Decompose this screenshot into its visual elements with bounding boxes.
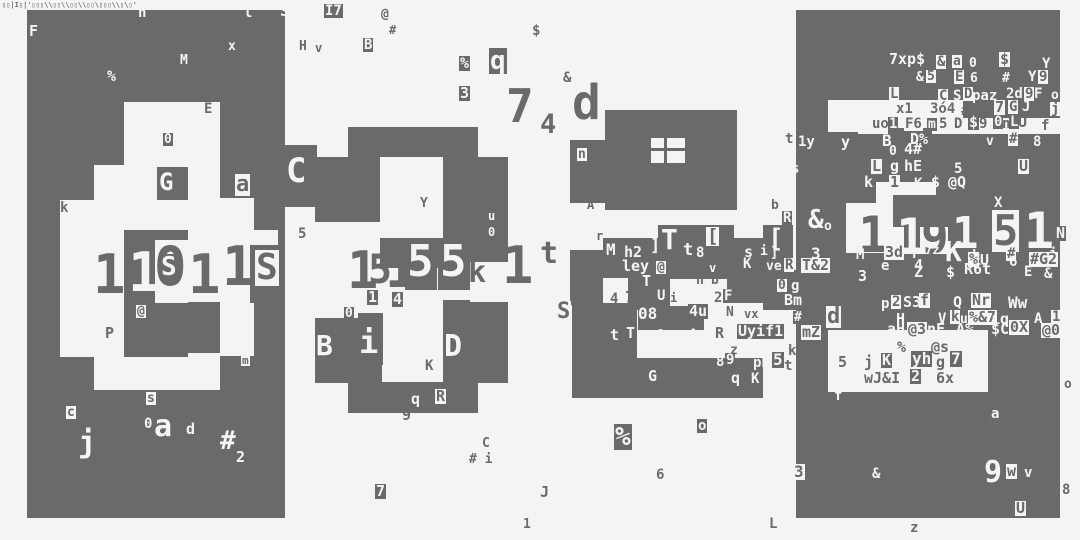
noise-glyph: R — [714, 326, 725, 341]
noise-glyph: R — [782, 211, 792, 225]
noise-glyph: N — [726, 306, 734, 319]
noise-glyph: uo — [872, 117, 889, 131]
noise-glyph: b — [711, 274, 719, 287]
noise-glyph: k — [864, 175, 873, 190]
noise-block — [651, 138, 664, 148]
noise-glyph: 7xp$ — [888, 52, 926, 67]
noise-glyph: & — [563, 71, 571, 85]
noise-glyph: n — [577, 148, 587, 161]
noise-glyph: 6 — [761, 291, 769, 304]
noise-glyph: 8 — [1033, 135, 1041, 149]
noise-glyph: @3 — [907, 322, 927, 337]
noise-glyph: 7 — [506, 83, 534, 129]
noise-glyph: v — [315, 42, 322, 54]
noise-block — [94, 353, 220, 390]
noise-glyph: L — [769, 517, 777, 531]
noise-glyph: M — [856, 248, 864, 262]
noise-glyph: P — [105, 326, 114, 341]
noise-glyph: N — [1055, 226, 1066, 241]
noise-glyph: 8 — [689, 345, 697, 359]
noise-glyph: 1 — [502, 240, 533, 292]
noise-glyph: 0 — [344, 307, 354, 320]
noise-glyph: # — [220, 428, 236, 454]
noise-glyph: ] — [650, 238, 660, 255]
noise-glyph: 1y — [798, 135, 815, 149]
noise-glyph: 9 — [979, 117, 987, 131]
noise-glyph: c — [66, 406, 76, 419]
noise-glyph: 5 — [939, 117, 947, 131]
noise-glyph: p — [881, 297, 889, 311]
noise-block — [651, 151, 664, 163]
noise-glyph: q — [411, 392, 420, 407]
noise-glyph: S — [255, 250, 279, 286]
noise-glyph: R6t — [964, 262, 991, 277]
noise-glyph: 3 — [793, 464, 805, 480]
noise-glyph: 7 — [994, 100, 1005, 115]
noise-glyph: $ — [931, 175, 940, 190]
noise-glyph: 8 — [716, 355, 724, 369]
noise-glyph: D — [444, 332, 462, 362]
noise-glyph: 0 — [969, 57, 977, 70]
noise-glyph: yh — [911, 351, 932, 367]
noise-glyph: # i — [469, 453, 492, 466]
noise-glyph: Ww — [1008, 295, 1027, 311]
noise-glyph: d — [572, 79, 601, 127]
noise-glyph: 3 — [858, 269, 867, 284]
noise-glyph: i — [359, 326, 378, 358]
noise-glyph: o — [824, 220, 832, 233]
noise-glyph: # — [1008, 132, 1018, 146]
noise-glyph: R — [784, 258, 794, 272]
noise-glyph: 1 — [367, 290, 378, 305]
noise-glyph: t — [784, 359, 792, 373]
noise-glyph: n — [696, 274, 704, 287]
noise-glyph: r — [596, 230, 603, 242]
noise-glyph: aH — [887, 322, 905, 337]
noise-glyph: @ — [656, 261, 666, 274]
noise-glyph: S — [280, 4, 289, 19]
noise-glyph: j — [864, 355, 873, 370]
noise-block — [315, 157, 380, 222]
noise-glyph: s — [791, 162, 799, 176]
noise-glyph: $ — [968, 115, 979, 130]
noise-glyph: q — [489, 48, 507, 74]
noise-glyph: $ — [532, 24, 540, 38]
noise-glyph: 8 — [696, 246, 704, 260]
noise-glyph: x1 — [896, 102, 913, 116]
noise-glyph: 5 — [838, 355, 847, 370]
noise-glyph: 1 — [93, 248, 126, 302]
noise-glyph: s — [146, 392, 156, 405]
noise-glyph: Uyif1 — [737, 324, 784, 339]
noise-glyph: Y — [1028, 70, 1036, 84]
noise-glyph: i — [670, 292, 677, 304]
noise-glyph: E — [1024, 265, 1032, 279]
barcode-string: ▯▯|I▯|'▯▯▯\\▯▯\\▯▯\\▯▯\▯▯▯\\▯\▯' — [2, 1, 137, 9]
noise-glyph: hE — [904, 159, 922, 174]
noise-glyph: u — [487, 210, 496, 222]
noise-glyph: o — [697, 419, 707, 433]
noise-glyph: 6 — [656, 468, 664, 482]
noise-glyph: S — [556, 301, 571, 323]
noise-glyph: $ — [999, 52, 1010, 67]
noise-glyph: 0 — [163, 133, 173, 146]
noise-glyph: 5 — [772, 352, 784, 368]
noise-glyph: 0 — [487, 226, 496, 238]
noise-glyph: % — [614, 424, 632, 450]
noise-glyph: 9 — [984, 458, 1002, 488]
noise-glyph: nF — [927, 322, 945, 337]
noise-glyph: 4# — [904, 142, 922, 157]
noise-glyph: U — [1018, 115, 1027, 130]
noise-glyph: 3 — [459, 86, 470, 101]
noise-glyph: Q — [953, 295, 962, 310]
noise-glyph: x — [228, 40, 236, 53]
noise-glyph: a — [154, 412, 172, 442]
noise-glyph: 6x — [936, 371, 954, 386]
noise-glyph: 0 — [656, 328, 665, 343]
noise-glyph: t — [610, 328, 619, 343]
noise-glyph: 1 — [523, 518, 531, 531]
noise-glyph: @0 — [1041, 323, 1061, 338]
noise-glyph: $C — [991, 322, 1009, 337]
noise-glyph: 7 — [375, 484, 386, 499]
noise-glyph: 9 — [1038, 70, 1048, 84]
noise-glyph: q — [731, 371, 740, 386]
noise-glyph: y — [841, 135, 850, 150]
noise-glyph: f — [834, 389, 842, 403]
noise-glyph: F6 — [904, 117, 923, 131]
noise-glyph: k — [468, 258, 486, 288]
noise-glyph: j — [78, 428, 96, 458]
noise-glyph: mZ — [801, 325, 821, 340]
noise-glyph: 4 — [610, 292, 618, 306]
noise-glyph: D — [954, 117, 962, 131]
noise-glyph: b — [771, 199, 779, 212]
noise-glyph: @ — [381, 8, 389, 21]
noise-glyph: a — [952, 55, 962, 68]
noise-glyph: # — [389, 24, 396, 36]
noise-glyph: G — [647, 369, 658, 384]
noise-glyph: T — [625, 326, 636, 341]
noise-glyph: M — [606, 242, 616, 258]
noise-glyph: H — [299, 40, 307, 53]
noise-glyph: & — [936, 55, 946, 69]
noise-glyph: 5 — [406, 240, 435, 284]
noise-glyph: % — [107, 69, 116, 84]
noise-glyph: # — [1002, 72, 1010, 85]
noise-glyph: K — [945, 238, 962, 266]
noise-glyph: 08 — [638, 306, 657, 322]
noise-glyph: K — [881, 353, 892, 368]
noise-glyph: E — [954, 70, 964, 84]
noise-glyph: K — [425, 359, 433, 373]
noise-glyph: t — [784, 132, 794, 146]
noise-glyph: [ — [768, 226, 784, 252]
noise-glyph: 9 — [402, 408, 411, 423]
noise-glyph: 4u — [688, 304, 708, 319]
noise-glyph: M — [180, 54, 188, 67]
noise-glyph: L — [889, 87, 899, 101]
noise-glyph: J — [1022, 100, 1030, 114]
noise-glyph: 9 — [725, 353, 735, 367]
noise-glyph: 8 — [737, 291, 745, 304]
noise-glyph: e — [881, 259, 889, 273]
noise-glyph: E — [204, 102, 212, 116]
noise-glyph: 7z — [925, 244, 939, 256]
noise-glyph: a — [235, 174, 250, 196]
noise-glyph: f — [919, 293, 930, 308]
noise-glyph: pP — [753, 356, 770, 370]
noise-glyph: t — [540, 239, 558, 269]
noise-glyph: 1 — [888, 117, 898, 131]
noise-glyph: ve — [766, 260, 782, 273]
noise-glyph: & — [808, 207, 824, 233]
noise-glyph: $ — [946, 265, 955, 280]
noise-glyph: 9 — [745, 289, 753, 302]
noise-glyph: 5 — [992, 210, 1019, 252]
noise-glyph: 2 — [714, 291, 722, 305]
noise-glyph: I7 — [324, 4, 343, 18]
noise-glyph: F — [29, 24, 38, 39]
noise-glyph: 7 — [625, 290, 634, 305]
noise-glyph: 7 — [950, 351, 962, 367]
noise-glyph: F — [723, 289, 733, 303]
noise-glyph: U — [656, 289, 666, 303]
noise-glyph: % — [896, 340, 907, 355]
noise-glyph: 4 — [392, 292, 403, 307]
noise-glyph: h — [138, 6, 146, 20]
noise-glyph: g — [936, 355, 945, 370]
noise-glyph: z — [910, 521, 918, 535]
noise-glyph: S — [160, 254, 178, 280]
noise-canvas: ▯▯|I▯|'▯▯▯\\▯▯\\▯▯\\▯▯\▯▯▯\\▯\▯' hlSI7Fx… — [0, 0, 1080, 540]
noise-glyph: k — [788, 344, 796, 358]
noise-glyph: i — [760, 245, 768, 258]
noise-glyph: K — [742, 257, 752, 271]
noise-glyph: l — [244, 6, 252, 20]
noise-glyph: 4 — [540, 111, 556, 138]
noise-glyph: v — [1024, 466, 1032, 480]
noise-glyph: & — [872, 467, 880, 481]
noise-glyph: w — [1006, 464, 1017, 479]
noise-glyph: k — [60, 201, 68, 215]
noise-block — [570, 250, 603, 305]
noise-glyph: j — [1050, 102, 1060, 116]
noise-glyph: vx — [744, 308, 758, 320]
noise-glyph: K — [751, 372, 759, 386]
noise-glyph: g — [889, 159, 900, 174]
noise-glyph: 6 — [1009, 255, 1017, 269]
noise-glyph: 5 — [439, 240, 468, 284]
noise-glyph: B — [363, 38, 373, 52]
noise-glyph: C — [482, 437, 490, 450]
noise-glyph: @ — [136, 305, 146, 318]
noise-glyph: m — [241, 355, 250, 366]
noise-glyph: Z — [914, 265, 923, 280]
noise-glyph: 2 — [910, 369, 921, 384]
noise-block — [667, 138, 685, 148]
noise-glyph: L — [871, 159, 882, 174]
noise-glyph: d — [826, 306, 841, 328]
noise-glyph: o — [1064, 378, 1072, 391]
noise-glyph: G — [1008, 100, 1018, 114]
noise-glyph: wJ&I — [864, 371, 900, 386]
noise-glyph: W — [768, 371, 776, 385]
noise-glyph: T — [661, 226, 678, 254]
noise-glyph: t — [683, 242, 693, 259]
noise-glyph: % — [459, 56, 470, 71]
noise-glyph: Nr — [971, 293, 991, 308]
noise-glyph: 2 — [891, 295, 901, 309]
noise-glyph: A% — [956, 322, 974, 337]
noise-glyph: @Q — [948, 175, 966, 190]
noise-glyph: 1 — [222, 240, 255, 294]
noise-glyph: f — [1041, 119, 1049, 133]
noise-block — [667, 151, 685, 163]
noise-glyph: R — [435, 389, 446, 404]
noise-glyph: J — [540, 485, 549, 500]
noise-glyph: 5 — [926, 70, 936, 83]
noise-block — [348, 127, 478, 157]
noise-block — [828, 330, 988, 392]
noise-glyph: T — [642, 274, 651, 289]
noise-glyph: K — [914, 177, 922, 191]
noise-glyph: a — [991, 407, 999, 421]
noise-glyph: & — [1044, 267, 1052, 281]
noise-glyph: 8 — [1062, 483, 1070, 497]
noise-glyph: 1 — [889, 175, 900, 190]
noise-glyph: 5 — [298, 227, 306, 241]
noise-glyph: 0X — [1009, 320, 1029, 335]
noise-glyph: 2 — [236, 450, 245, 465]
noise-glyph: F — [1034, 87, 1042, 101]
noise-glyph: B — [316, 332, 333, 360]
noise-glyph: C — [286, 154, 306, 188]
noise-glyph: 3ó4 — [930, 102, 955, 116]
noise-glyph: 1 — [188, 248, 221, 302]
noise-glyph: v — [986, 135, 994, 148]
noise-glyph: Y — [420, 197, 428, 210]
noise-glyph: A — [689, 328, 697, 342]
noise-glyph: #G2 — [1029, 252, 1058, 267]
noise-glyph: [ — [706, 227, 719, 246]
noise-glyph: U — [1015, 501, 1026, 516]
noise-glyph: Bm — [784, 293, 802, 308]
noise-glyph: T&2 — [801, 258, 830, 273]
noise-glyph: A — [587, 199, 594, 211]
noise-glyph: m — [927, 118, 937, 131]
noise-glyph: 6 — [970, 72, 978, 85]
noise-glyph: 0 — [143, 417, 153, 431]
noise-glyph: G — [159, 170, 173, 194]
noise-glyph: & — [916, 71, 924, 84]
noise-glyph: d — [186, 422, 195, 437]
noise-glyph: U — [1018, 159, 1029, 174]
